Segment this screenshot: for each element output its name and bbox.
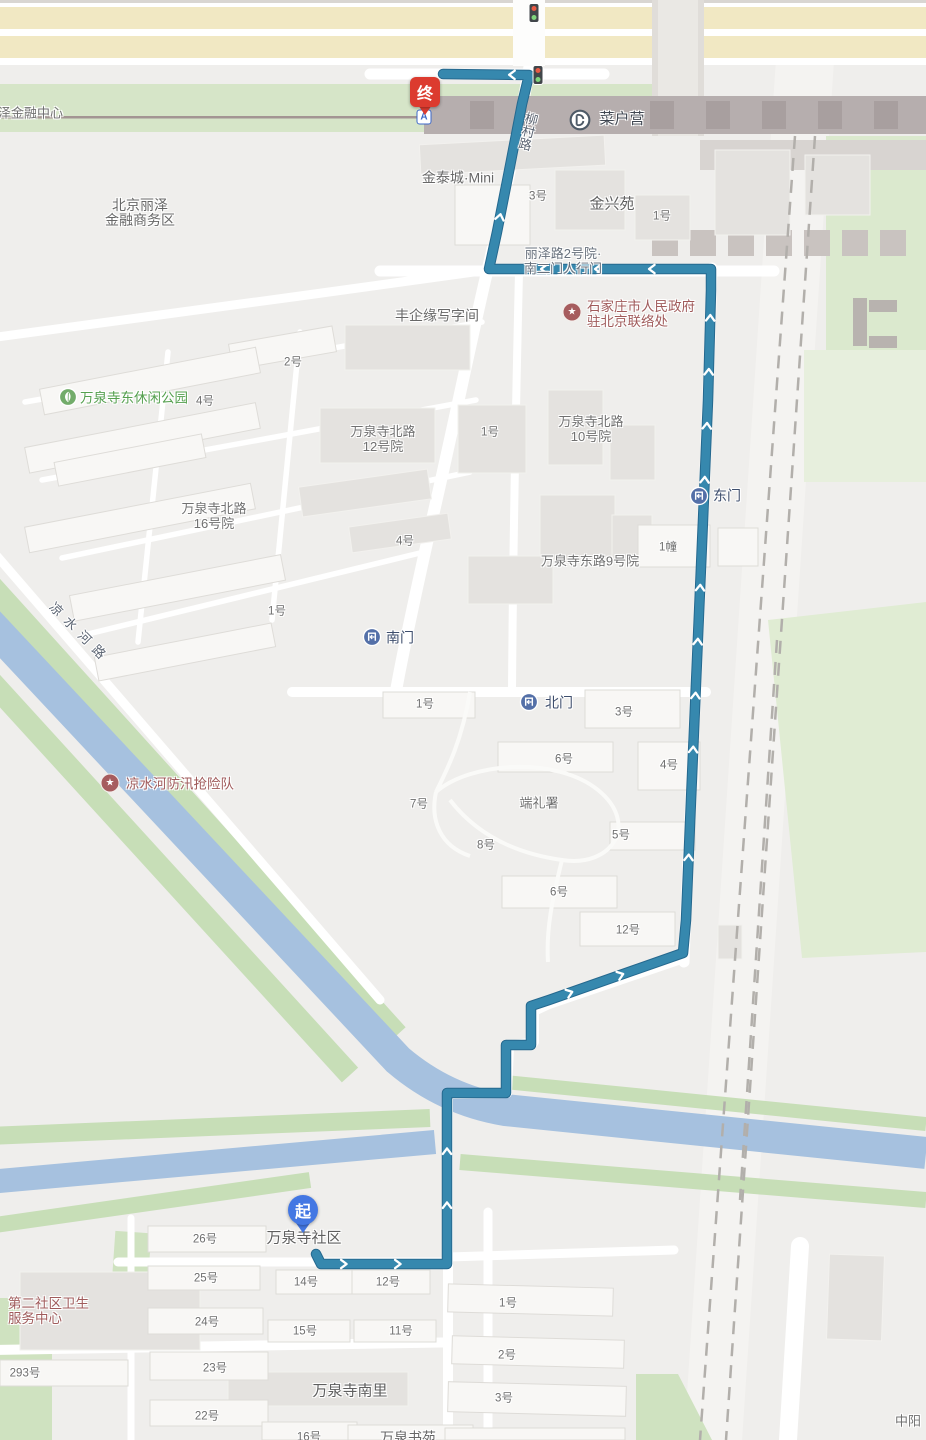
poi-star-icon[interactable]: ★ xyxy=(101,774,120,793)
poi-star-icon[interactable]: ★ xyxy=(563,303,582,322)
pin-label: 起 xyxy=(288,1195,318,1225)
traffic-light-icon xyxy=(529,3,540,23)
traffic-light-icon xyxy=(533,65,544,85)
map-viewport[interactable]: A★★★ 丽泽金融中心北京丽泽金融商务区金泰城·Mini3号金兴苑1号丽泽路2号… xyxy=(0,0,926,1440)
pin-label: 终 xyxy=(410,77,440,107)
park-icon[interactable] xyxy=(59,388,78,407)
metro-station-icon[interactable] xyxy=(570,110,591,131)
gate-icon[interactable] xyxy=(520,693,539,712)
gate-icon[interactable] xyxy=(690,487,709,506)
route-overlay xyxy=(0,0,926,1440)
gate-icon[interactable] xyxy=(363,628,382,647)
